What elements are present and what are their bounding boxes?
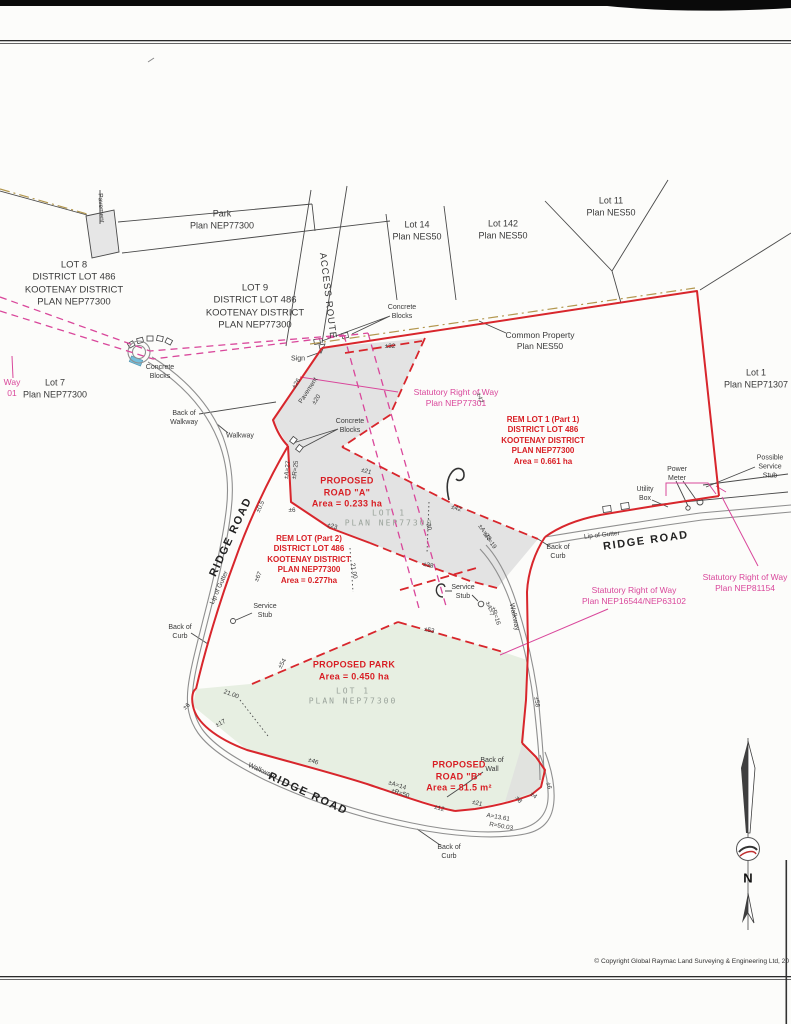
copyright-notice: © Copyright Global Raymac Land Surveying… <box>594 958 789 965</box>
north-arrow <box>737 738 760 930</box>
srw-81154-leader <box>722 497 758 566</box>
concrete-block <box>147 336 153 341</box>
service-hook-symbol-small <box>436 584 445 597</box>
proposed-park-fill <box>193 622 545 811</box>
concrete-block <box>137 337 144 343</box>
concrete-block <box>156 335 163 341</box>
srw-16544-leader <box>500 609 608 655</box>
survey-plan-drawing <box>0 0 791 1024</box>
pavement-pad-fill <box>86 210 119 258</box>
service-hook-symbol <box>447 468 464 500</box>
utility-box-symbol <box>621 502 630 509</box>
survey-plan-page: LOT 8 DISTRICT LOT 486 KOOTENAY DISTRICT… <box>0 0 791 1024</box>
area-fills <box>86 210 545 811</box>
utility-box-symbol <box>603 505 612 512</box>
concrete-block <box>165 338 173 345</box>
